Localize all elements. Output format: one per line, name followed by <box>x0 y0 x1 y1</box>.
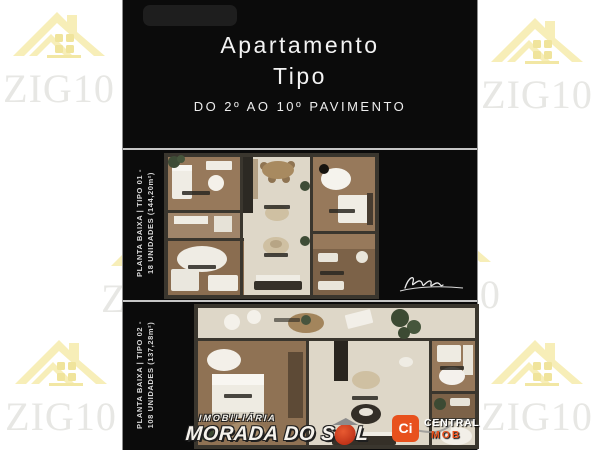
flyer-panel: Apartamento Tipo DO 2º AO 10º PAVIMENTO … <box>122 0 478 450</box>
watermark-bottom-left: ZIG10 <box>0 334 122 437</box>
partner-logo-central-mob: Ci CENTRAL MOB <box>390 408 478 450</box>
partner-line-1: CENTRAL <box>424 417 480 429</box>
ci-badge-icon: Ci <box>392 415 419 442</box>
partner-line-2: MOB <box>431 429 480 441</box>
watermark-top-right: ZIG10 <box>476 12 598 115</box>
flyer-canvas: ZIG10 ZIG10 ZIG10 <box>0 0 600 450</box>
plan-2-label-line-1: PLANTA BAIXA | TIPO 02 - <box>134 300 145 450</box>
plan-1-section: PLANTA BAIXA | TIPO 01 - 18 UNIDADES (14… <box>123 150 477 298</box>
watermark-top-left: ZIG10 <box>0 6 120 109</box>
watermark-bottom-right: ZIG10 <box>476 334 598 437</box>
plan-1-label-line-1: PLANTA BAIXA | TIPO 01 - <box>134 148 145 298</box>
signature-icon <box>397 272 465 296</box>
house-icon <box>9 334 113 396</box>
partner-logo-text: CENTRAL MOB <box>424 417 480 441</box>
house-icon <box>485 334 589 396</box>
plan-2-label: PLANTA BAIXA | TIPO 02 - 108 UNIDADES (1… <box>134 300 156 450</box>
plan-2-label-line-2: 108 UNIDADES (137,28m²) <box>145 300 156 450</box>
plan-1-label-line-2: 18 UNIDADES (144,20m²) <box>145 148 156 298</box>
plan-1-label: PLANTA BAIXA | TIPO 01 - 18 UNIDADES (14… <box>134 148 156 298</box>
watermark-text: ZIG10 <box>0 69 120 109</box>
redacted-badge <box>143 5 237 26</box>
agency-logo-main-text: MORADA DO SL <box>185 423 370 446</box>
agency-name-left: MORADA DO S <box>185 423 336 446</box>
watermark-text: ZIG10 <box>476 397 598 437</box>
house-icon <box>7 6 111 68</box>
subtitle: DO 2º AO 10º PAVIMENTO <box>123 90 477 114</box>
title-section: Apartamento Tipo DO 2º AO 10º PAVIMENTO <box>123 0 477 148</box>
title-line-2: Tipo <box>123 59 477 90</box>
floor-plan-tipo-01 <box>164 153 379 299</box>
watermark-text: ZIG10 <box>476 75 598 115</box>
agency-name-right: L <box>355 423 369 446</box>
agency-logo-morada-do-sol: IMOBILIÁRIA MORADA DO SL <box>185 413 370 446</box>
sun-icon <box>334 424 356 445</box>
watermark-text: ZIG10 <box>0 397 122 437</box>
house-icon <box>485 12 589 74</box>
